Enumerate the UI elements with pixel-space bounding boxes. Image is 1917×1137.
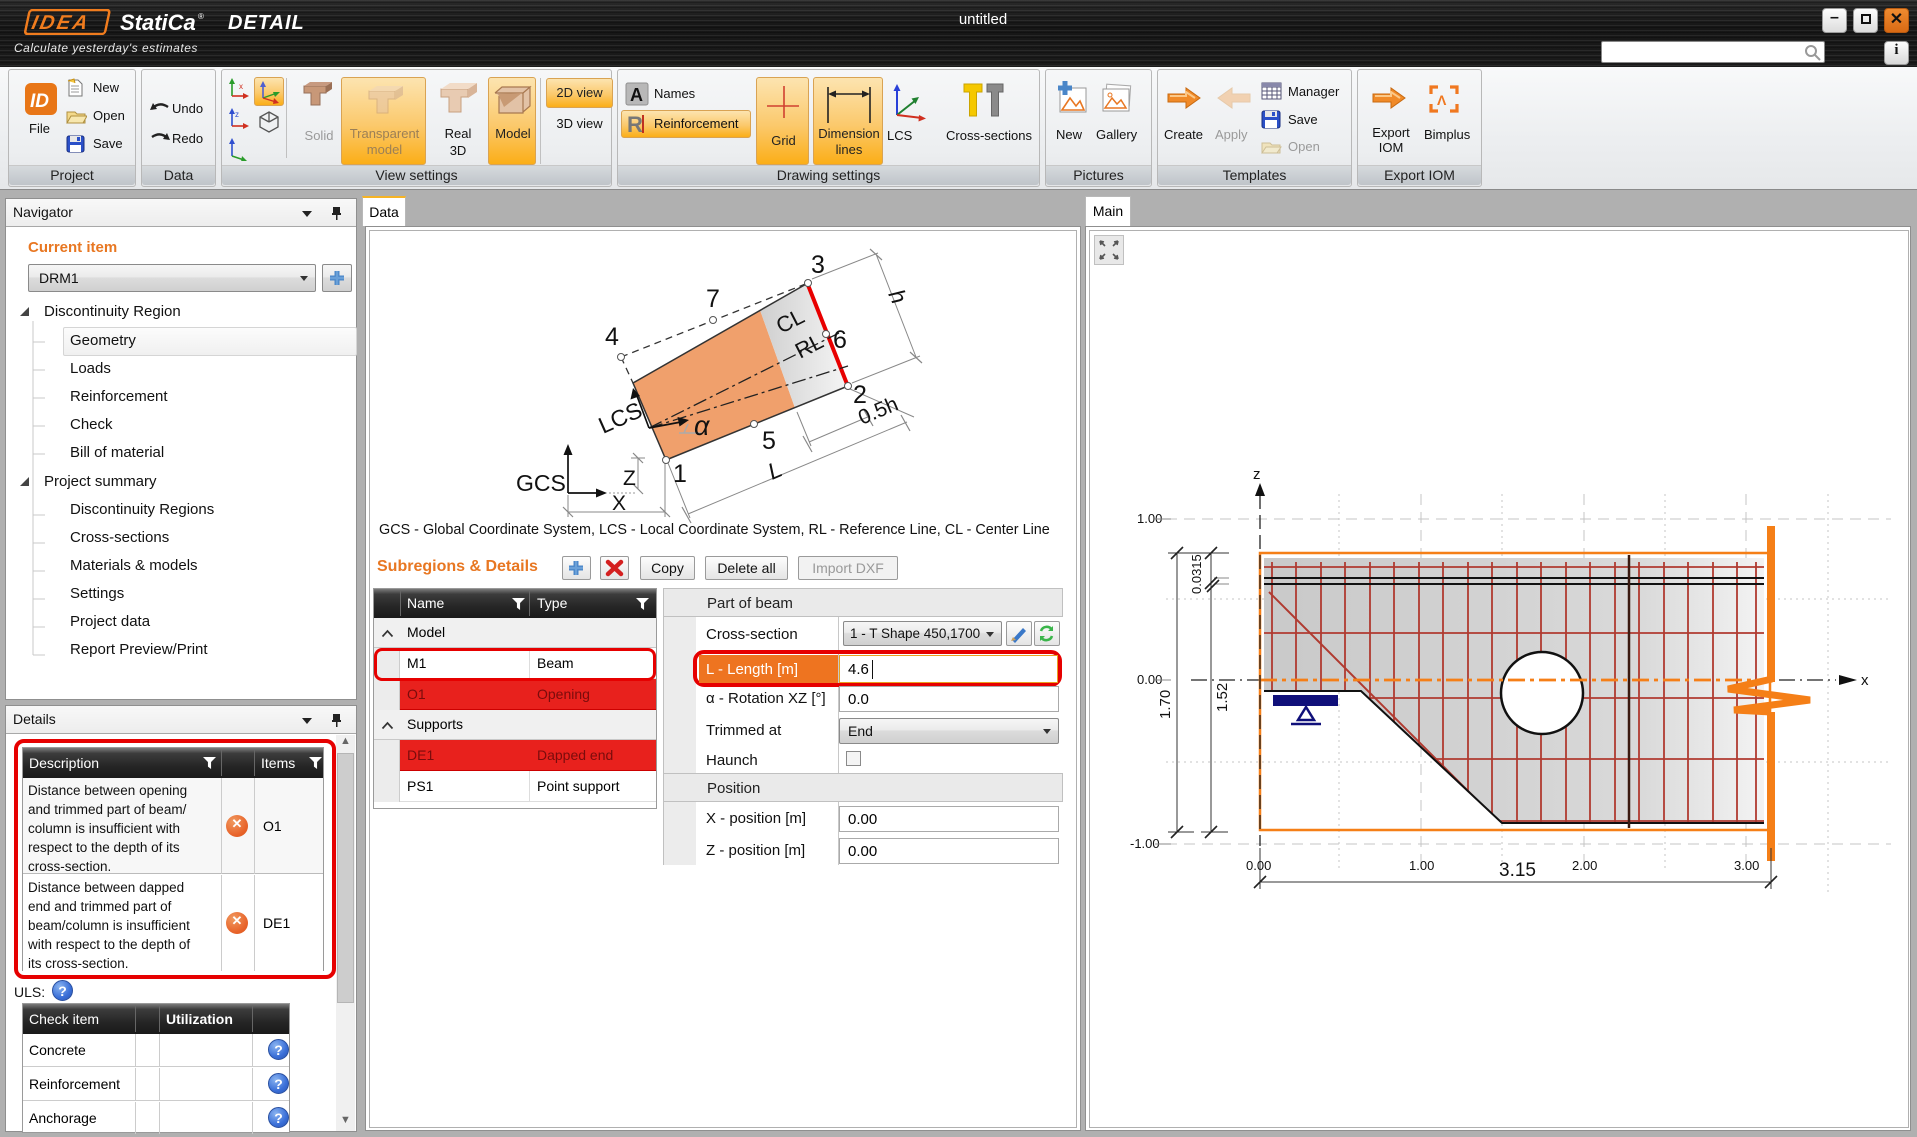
svg-text:5: 5: [762, 427, 776, 455]
svg-text:4: 4: [605, 323, 619, 351]
svg-text:α: α: [694, 411, 711, 441]
svg-text:LCS: LCS: [594, 397, 645, 439]
svg-text:0.00: 0.00: [1246, 858, 1271, 873]
svg-text:Z: Z: [623, 467, 636, 490]
svg-text:Λ: Λ: [1437, 92, 1447, 108]
svg-text:R: R: [627, 112, 643, 137]
svg-text:1: 1: [673, 460, 687, 488]
svg-text:1.70: 1.70: [1157, 690, 1174, 719]
svg-text:6: 6: [833, 326, 847, 354]
svg-text:7: 7: [706, 285, 720, 313]
svg-text:z: z: [1253, 466, 1261, 483]
svg-text:A: A: [630, 85, 643, 105]
svg-text:GCS: GCS: [516, 470, 566, 496]
svg-text:3.00: 3.00: [1734, 858, 1759, 873]
svg-text:0.0315: 0.0315: [1189, 554, 1204, 594]
svg-text:2: 2: [853, 381, 867, 409]
svg-text:3: 3: [811, 251, 825, 279]
svg-text:2.00: 2.00: [1572, 858, 1597, 873]
svg-text:ID: ID: [30, 91, 49, 112]
svg-text:3.15: 3.15: [1499, 860, 1536, 881]
svg-text:z: z: [235, 110, 239, 119]
svg-text:x: x: [239, 82, 243, 91]
svg-text:h: h: [883, 285, 912, 308]
svg-text:x: x: [1861, 672, 1869, 689]
svg-text:1.52: 1.52: [1214, 683, 1231, 712]
svg-text:1.00: 1.00: [1409, 858, 1434, 873]
svg-text:X: X: [612, 492, 626, 515]
